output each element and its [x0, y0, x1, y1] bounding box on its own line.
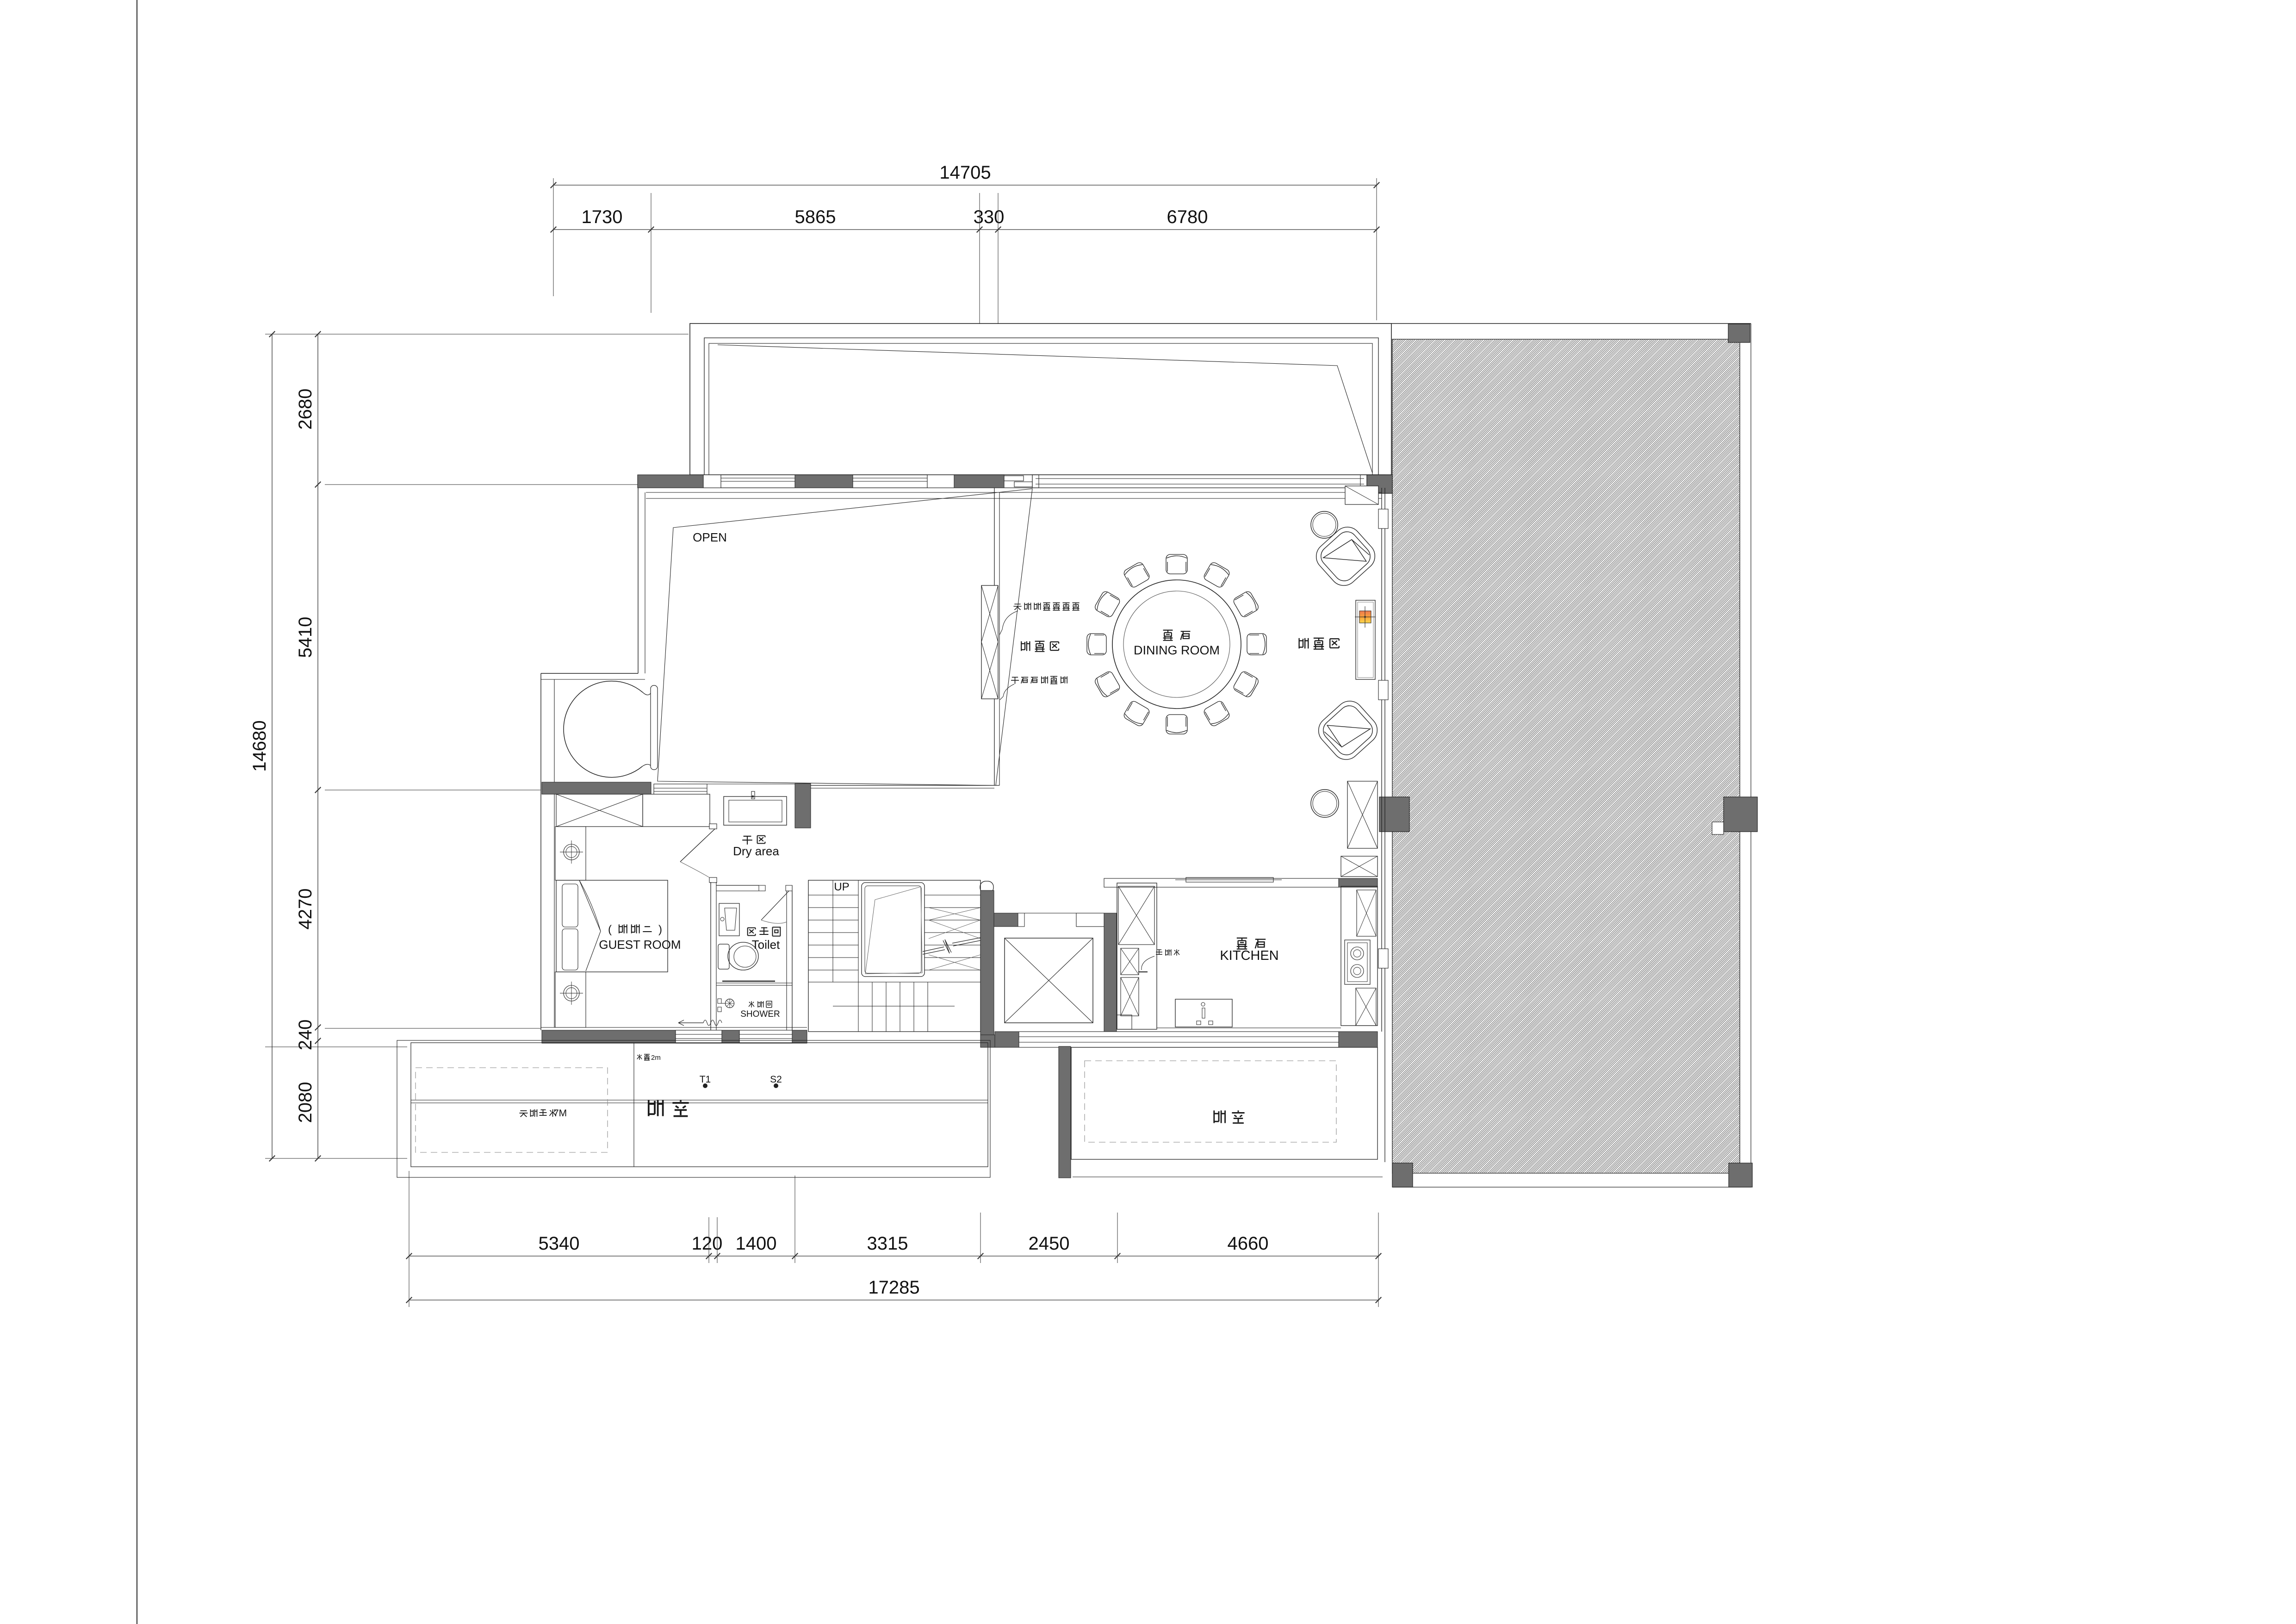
svg-text:DINING ROOM: DINING ROOM	[1134, 643, 1220, 657]
svg-text:2680: 2680	[295, 389, 316, 430]
svg-text:UP: UP	[834, 881, 849, 893]
svg-text:4270: 4270	[295, 889, 316, 930]
svg-text:240: 240	[295, 1020, 316, 1051]
svg-text:): )	[658, 923, 662, 936]
svg-text:6780: 6780	[1167, 207, 1208, 227]
svg-text:S2: S2	[770, 1074, 782, 1085]
svg-text:14705: 14705	[939, 162, 991, 183]
svg-text:GUEST ROOM: GUEST ROOM	[599, 938, 681, 952]
svg-text:4660: 4660	[1228, 1233, 1269, 1254]
svg-text:1730: 1730	[582, 207, 623, 227]
svg-text:2080: 2080	[295, 1082, 316, 1123]
svg-text:OPEN: OPEN	[693, 530, 727, 544]
svg-text:SHOWER: SHOWER	[740, 1009, 780, 1019]
svg-text:(: (	[608, 923, 612, 936]
svg-text:5410: 5410	[295, 617, 316, 658]
svg-text:120: 120	[692, 1233, 723, 1254]
svg-text:5340: 5340	[539, 1233, 580, 1254]
svg-text:5865: 5865	[795, 207, 836, 227]
svg-text:14680: 14680	[249, 720, 270, 772]
svg-text:2m: 2m	[651, 1054, 661, 1062]
svg-text:7M: 7M	[553, 1108, 567, 1119]
svg-text:1400: 1400	[736, 1233, 777, 1254]
svg-text:Toilet: Toilet	[752, 938, 780, 952]
svg-text:Dry area: Dry area	[733, 844, 779, 858]
svg-text:17285: 17285	[868, 1277, 919, 1298]
svg-text:3315: 3315	[867, 1233, 908, 1254]
svg-text:330: 330	[974, 207, 1005, 227]
svg-text:KITCHEN: KITCHEN	[1220, 948, 1278, 963]
svg-text:T1: T1	[700, 1074, 711, 1085]
svg-text:2450: 2450	[1029, 1233, 1070, 1254]
